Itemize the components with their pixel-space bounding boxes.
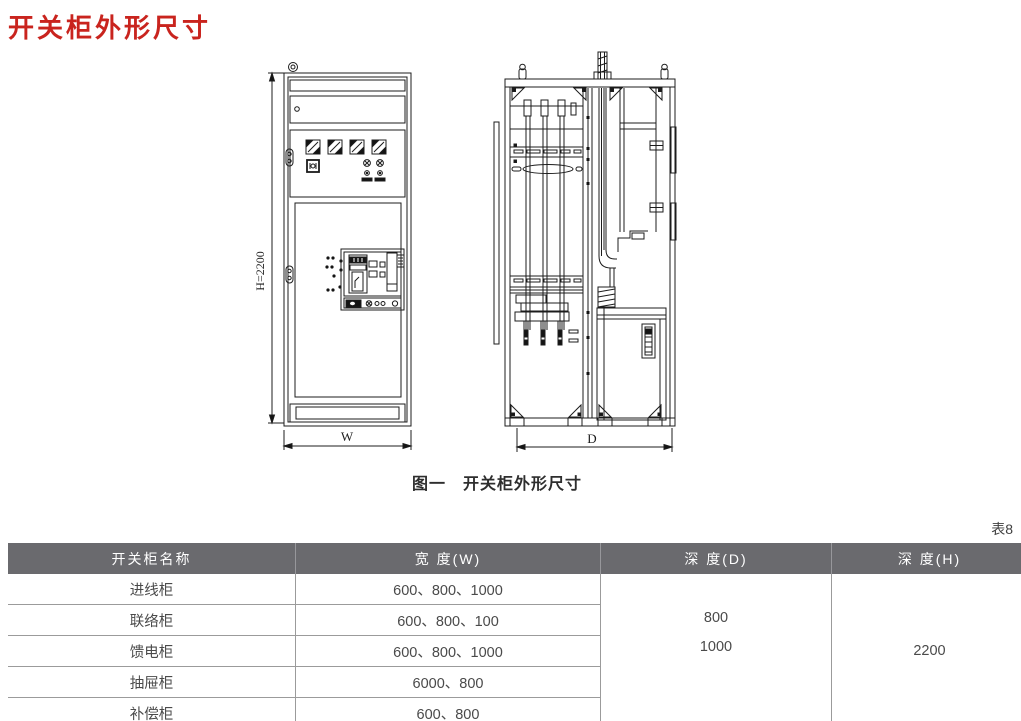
dimension-spec-table: 开关柜名称 宽 度(W) 深 度(D) 深 度(H) 进线柜 600、800、1…: [8, 543, 1021, 721]
depth-d-value: 1000: [602, 633, 830, 662]
bottom-gussets: [505, 405, 675, 426]
height-dimension-label: H=2200: [253, 251, 267, 290]
rear-compartment: [597, 88, 666, 420]
cabinet-name-cell: 补偿柜: [8, 698, 296, 721]
cabinet-name-cell: 联络柜: [8, 605, 296, 636]
table-header-row: 开关柜名称 宽 度(W) 深 度(D) 深 度(H): [8, 543, 1021, 574]
front-view-drawing: [284, 63, 411, 427]
door-rivet-dots: [325, 256, 342, 291]
header-depth-h: 深 度(H): [832, 543, 1021, 574]
top-busbar-stub: [594, 52, 611, 79]
upper-door: [290, 96, 405, 123]
circuit-breaker-unit: [341, 249, 404, 310]
side-view-dimensions: D: [517, 428, 672, 452]
lifting-eye-icon: [289, 63, 298, 72]
document-page: 开关柜外形尺寸: [0, 0, 1021, 721]
cabinet-name-cell: 进线柜: [8, 574, 296, 605]
depth-d-cell: 800 1000: [601, 574, 832, 721]
width-cell: 600、800、1000: [296, 636, 601, 667]
cable-compartment: [510, 100, 583, 345]
width-cell: 6000、800: [296, 667, 601, 698]
depth-dimension-label: D: [587, 431, 596, 446]
header-cabinet-name: 开关柜名称: [8, 543, 296, 574]
top-gussets: [512, 88, 662, 100]
width-dimension-label: W: [341, 429, 354, 444]
width-cell: 600、800、1000: [296, 574, 601, 605]
figure-drawings: H=2200 W: [0, 0, 1021, 520]
table-number-label: 表8: [0, 519, 1013, 539]
width-cell: 600、800、100: [296, 605, 601, 636]
cabinet-name-cell: 抽屉柜: [8, 667, 296, 698]
depth-d-spacer: [602, 575, 830, 604]
header-depth-d: 深 度(D): [601, 543, 832, 574]
indicator-lamp-icons: [362, 160, 385, 181]
width-cell: 600、800: [296, 698, 601, 721]
panel-meter-icons: [306, 140, 386, 154]
table-row: 进线柜 600、800、1000 800 1000 2200: [8, 574, 1021, 605]
figure-caption: 图一 开关柜外形尺寸: [287, 470, 707, 494]
cabinet-name-cell: 馈电柜: [8, 636, 296, 667]
height-h-cell: 2200: [832, 574, 1021, 721]
energy-meter-icon: [307, 160, 319, 172]
busbar-riser: [598, 88, 617, 307]
depth-d-value: 800: [602, 604, 830, 633]
header-width: 宽 度(W): [296, 543, 601, 574]
side-view-drawing: [494, 52, 676, 426]
